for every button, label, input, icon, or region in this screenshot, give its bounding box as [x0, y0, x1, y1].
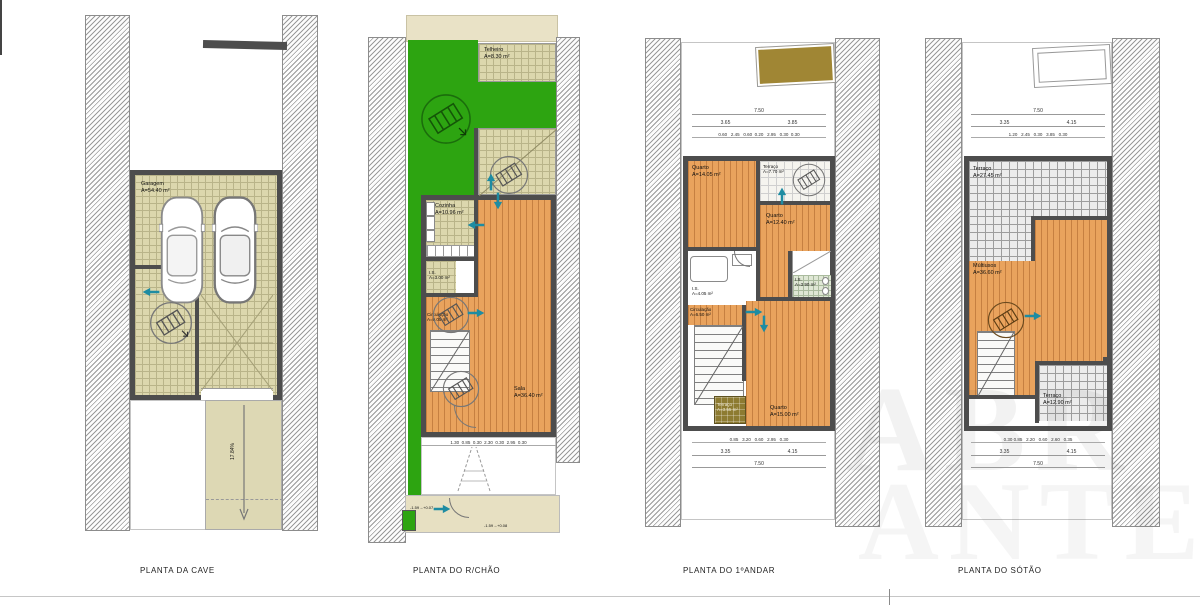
- direction-arrow-icon: [432, 504, 452, 514]
- caption-rchao: PLANTA DO R/CHÃO: [413, 566, 500, 575]
- room-area: A=6.50 m²: [690, 312, 711, 317]
- sheet-left-mark: [0, 0, 2, 55]
- andar-dim-top-pair: 3.65 3.85: [692, 119, 826, 127]
- room-area: A=3.90 m²: [795, 282, 816, 287]
- dim-value: 3.35: [971, 448, 1038, 455]
- rchao-wall-v1: [474, 200, 478, 297]
- quarto2-label: Quarto A=12.40 m²: [766, 213, 795, 226]
- cave-top-wall-bar: [203, 40, 287, 50]
- direction-arrow-icon: [466, 308, 486, 318]
- cave-neighbor-wall-right: [282, 15, 318, 531]
- andar-property-area: 7.50 3.65 3.85 0.60 2.45 0.60 0.20 2.95 …: [681, 42, 835, 520]
- andar-canopy: [756, 44, 835, 86]
- watermark-line2: ANTES: [858, 458, 1200, 587]
- terraco1-label: Terraço A=7.70 m²: [763, 164, 784, 175]
- stair-diagonal: [695, 326, 743, 404]
- dim-value: 3.65: [692, 119, 759, 126]
- caption-andar: PLANTA DO 1ºANDAR: [683, 566, 775, 575]
- sotao-stairs: [977, 331, 1015, 397]
- dim-value: 4.15: [759, 448, 826, 455]
- room-area: A=7.70 m²: [763, 169, 784, 174]
- rchao-neighbor-wall-right: [556, 37, 580, 463]
- gate-door-arc: [449, 498, 469, 518]
- andar-wall-v2: [788, 251, 792, 301]
- tree-symbol-icon: [149, 301, 193, 345]
- room-area: A=36.60 m²: [973, 270, 1002, 277]
- kitchen-counter: [426, 245, 478, 257]
- dim-value: 3.35: [971, 119, 1038, 126]
- door-swing-cross: [201, 295, 273, 391]
- andar-dim-bottom-total: 7.50: [692, 460, 826, 468]
- circulacao-label: Circulação A=6.50 m²: [690, 307, 711, 318]
- room-name: Quarto: [692, 165, 721, 172]
- direction-arrow-icon: [1023, 311, 1043, 321]
- garage-wall-stub: [135, 265, 161, 269]
- is2-label: I.S. A=3.90 m²: [795, 277, 816, 288]
- rchao-garden-right: [478, 82, 556, 128]
- room-name: Múltiusos: [973, 263, 1002, 270]
- rchao-garden-path: [408, 210, 421, 495]
- room-area: A=3.00 m²: [429, 275, 450, 280]
- room-area: A=8.30 m²: [484, 54, 510, 61]
- room-name: Terraço: [1043, 393, 1072, 400]
- andar-stairs: [694, 325, 744, 405]
- tree-symbol-icon: [442, 370, 480, 408]
- sheet-bottom-tick: [889, 589, 890, 605]
- sala-label: Sala A=36.40 m²: [514, 386, 543, 399]
- rchao-neighbor-wall-left: [368, 37, 406, 543]
- skylight-inner-frame: [1037, 49, 1106, 83]
- sotao-terraco1-b: [969, 216, 1031, 261]
- sotao-dim-top-pair: 3.35 4.15: [971, 119, 1105, 127]
- kitchen-appliance: [426, 202, 435, 216]
- room-area: A=10.96 m²: [435, 210, 464, 217]
- tree-symbol-icon: [792, 163, 826, 197]
- sotao-multiusos-a: [1035, 220, 1107, 261]
- room-name: Garagem: [141, 181, 170, 188]
- room-area: A=12.40 m²: [766, 220, 795, 227]
- sotao-dim-top-row: 1.20 2.45 0.30 3.85 0.30: [971, 131, 1105, 138]
- rchao-telheiro: Telheiro A=8.30 m²: [478, 43, 556, 82]
- sotao-dim-bottom-total: 7.50: [971, 460, 1105, 468]
- room-area: A=36.40 m²: [514, 393, 543, 400]
- andar-dim-top-row: 0.60 2.45 0.60 0.20 2.95 0.30 0.30: [692, 131, 826, 138]
- rchao-front-paving: -1.59→+0.07 -1.59→+0.08: [405, 495, 560, 533]
- room-name: Terraço: [973, 166, 1002, 173]
- bathtub: [690, 256, 728, 282]
- room-name: Cozinha: [435, 203, 464, 210]
- is-label: I.S. A=3.00 m²: [429, 270, 450, 281]
- dim-value: 3.85: [759, 119, 826, 126]
- shower-diagonal: [793, 251, 831, 273]
- quarto3-label: Quarto A=15.00 m²: [770, 405, 799, 418]
- quarto1-label: Quarto A=14.05 m²: [692, 165, 721, 178]
- terraco1-label: Terraço A=27.45 m²: [973, 166, 1002, 179]
- sotao-property-area: 7.50 3.35 4.15 1.20 2.45 0.30 3.85 0.30 …: [962, 42, 1112, 520]
- exterior-stair-dashed: [454, 443, 494, 493]
- sotao-dim-top-total: 7.50: [971, 107, 1105, 115]
- rchao-building: Sala A=36.40 m² Cozinha A=10.96 m² I.S. …: [421, 195, 556, 437]
- cave-sideyard: [130, 400, 206, 530]
- dim-value: 3.35: [692, 448, 759, 455]
- car-icon: [159, 191, 205, 309]
- level-mark-path: -1.59→+0.08: [484, 524, 507, 529]
- room-name: Quarto: [770, 405, 799, 412]
- direction-arrow-icon: [493, 191, 503, 211]
- toilet: [822, 277, 829, 285]
- room-area: A=3.55 m²: [717, 407, 738, 412]
- ramp-slope-label: 17.84%: [230, 443, 236, 460]
- cozinha-label: Cozinha A=10.96 m²: [435, 203, 464, 216]
- sheet-bottom-line: [0, 596, 1200, 597]
- andar-dim-bottom-row: 0.85 3.20 0.60 2.95 0.30: [692, 436, 826, 443]
- dim-value: 4.15: [1038, 119, 1105, 126]
- drawing-sheet: ABR ANTES Garagem A=54.40 m²: [0, 0, 1200, 605]
- plan-cave: Garagem A=54.40 m²: [85, 15, 318, 575]
- room-area: A=12.90 m²: [1043, 400, 1072, 407]
- ramp-down-arrow-icon: [239, 405, 249, 525]
- tree-symbol-icon: [432, 296, 470, 334]
- cave-driveway-ramp: 17.84%: [205, 400, 282, 530]
- cave-garage-room: Garagem A=54.40 m²: [130, 170, 282, 400]
- direction-arrow-icon: [486, 172, 496, 192]
- andar-dim-top-total: 7.50: [692, 107, 826, 115]
- andar-building: Quarto A=14.05 m² Terraço A=7.70 m: [683, 156, 835, 431]
- bidet: [822, 287, 829, 295]
- room-name: Sala: [514, 386, 543, 393]
- rchao-entry-court: [478, 128, 556, 195]
- direction-arrow-icon: [759, 314, 769, 334]
- kitchen-stove: [426, 216, 435, 230]
- andar-neighbor-wall-left: [645, 38, 681, 527]
- sotao-dim-bottom-pair: 3.35 4.15: [971, 448, 1105, 456]
- terraco2-label: Terraço A=12.90 m²: [1043, 393, 1072, 406]
- cave-neighbor-wall-left: [85, 15, 130, 531]
- car-icon: [212, 191, 258, 309]
- room-name: Telheiro: [484, 47, 510, 54]
- telheiro-label: Telheiro A=8.30 m²: [484, 47, 510, 60]
- direction-arrow-icon: [777, 186, 787, 206]
- andar-bath-right: I.S. A=3.90 m²: [792, 251, 830, 297]
- front-planter: [402, 510, 416, 531]
- caption-cave: PLANTA DA CAVE: [140, 566, 215, 575]
- sotao-dim-bottom-row: 0.30 0.85 2.20 0.60 2.60 0.35: [971, 436, 1105, 443]
- dim-value: 4.15: [1038, 448, 1105, 455]
- room-area: A=4.05 m²: [692, 291, 713, 296]
- andar-dim-bottom-pair: 3.35 4.15: [692, 448, 826, 456]
- room-area: A=14.05 m²: [692, 172, 721, 179]
- room-name: Quarto: [766, 213, 795, 220]
- rchao-terrain-band: [406, 15, 558, 42]
- sotao-skylight: [1032, 44, 1112, 88]
- tree-symbol-icon: [420, 93, 472, 145]
- level-mark-front: -1.59→+0.07: [410, 506, 433, 511]
- plan-andar: 7.50 3.65 3.85 0.60 2.45 0.60 0.20 2.95 …: [645, 15, 880, 575]
- room-area: A=27.45 m²: [973, 173, 1002, 180]
- kitchen-sink: [426, 230, 435, 242]
- is1-label: I.S. A=4.05 m²: [692, 286, 713, 297]
- room-area: A=15.00 m²: [770, 412, 799, 419]
- direction-arrow-icon: [466, 220, 486, 230]
- direction-arrow-icon: [141, 287, 161, 297]
- plan-rchao: Telheiro A=8.30 m² Sala: [368, 15, 580, 575]
- stair-diagonal: [978, 332, 1014, 396]
- multiusos-label: Múltiusos A=36.60 m²: [973, 263, 1002, 276]
